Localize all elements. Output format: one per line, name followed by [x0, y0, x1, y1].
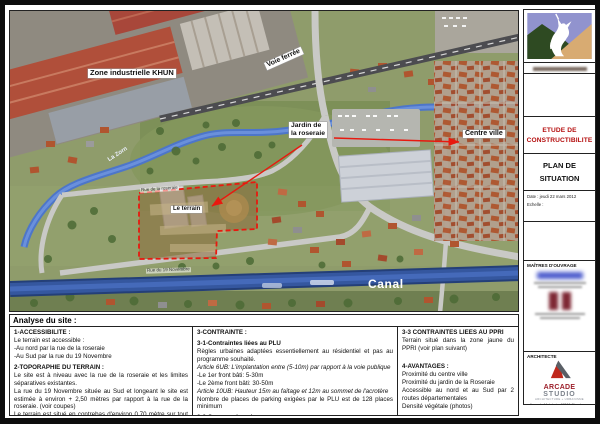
date-scale-box: Date : jeudi 22 mars 2012 Echelle :	[523, 190, 596, 222]
date-value: Date : jeudi 22 mars 2012	[527, 194, 592, 199]
maitres-ouvrage-header: MAÎTRES D'OUVRAGE	[527, 263, 592, 268]
text-line: La rue du 19 Novembre située au Sud et l…	[14, 388, 188, 412]
arcade-studio-logo-icon	[547, 359, 573, 379]
text-line: Article 6UB: L'implantation entre (5-10m…	[197, 364, 393, 372]
sheet-title-box: PLAN DE SITUATION	[523, 153, 596, 191]
text-line: Accessible au nord et au Sud par 2 route…	[402, 387, 514, 403]
text-line: Le terrain est accessible :	[14, 337, 188, 345]
city-logo-box	[523, 9, 596, 63]
sheet-title-line1: PLAN DE	[543, 161, 576, 170]
maitres-ouvrage-box: MAÎTRES D'OUVRAGE	[523, 260, 596, 352]
text-line: Proximité du jardin de la Roseraie	[402, 379, 514, 387]
text-line: Nombre de places de parking exigées par …	[197, 396, 393, 412]
label-centre-ville: Centre ville	[463, 130, 505, 138]
heading-avantages: 4-AVANTAGES :	[402, 363, 514, 371]
study-type-line2: CONSTRUCTIBILITE	[527, 137, 593, 144]
label-jardin-line1: Jardin de	[291, 122, 325, 130]
plan-sheet: Zone industrielle KHUN Voie ferrée Jardi…	[5, 5, 595, 418]
empty-box	[523, 221, 596, 261]
architecte-box: ARCHITECTE ARCADE STUDIO ARCHITECTURE + …	[523, 351, 596, 405]
empty-box	[523, 73, 596, 117]
analysis-col-ppri-avantages: 3-3 CONTRAINTES LIEES AU PPRI Terrain si…	[398, 327, 518, 415]
architect-address: 6 rue de Molsheim 67000 Strasbourg t 03 …	[527, 403, 592, 405]
text-line: -Au Sud par la rue du 19 Novembre	[14, 353, 188, 361]
study-type-line1: ETUDE DE	[542, 127, 576, 134]
heading-ppri: 3-3 CONTRAINTES LIEES AU PPRI	[402, 329, 514, 337]
label-jardin-roseraie: Jardin de la roseraie	[289, 122, 327, 138]
aerial-photo	[10, 11, 519, 312]
label-canal: Canal	[368, 277, 404, 291]
sheet-title-line2: SITUATION	[540, 174, 580, 183]
text-line: Le site est à niveau avec la rue de la r…	[14, 372, 188, 388]
label-zone-industrielle: Zone industrielle KHUN	[88, 69, 176, 78]
heading-accessibilite: 1-ACCESSIBILITE :	[14, 329, 188, 337]
architect-address-line: 6 rue de Molsheim 67000 Strasbourg	[527, 403, 592, 405]
heading-contraintes-plu: 3-1-Contraintes liées au PLU	[197, 340, 393, 348]
analysis-col-contraintes: 3-CONTRAINTE : 3-1-Contraintes liées au …	[193, 327, 398, 415]
text-line: Article 10UB: Hauteur 15m au faîtage et …	[197, 388, 393, 396]
heading-contrainte: 3-CONTRAINTE :	[197, 329, 393, 337]
text-line: Proximité du centre ville	[402, 371, 514, 379]
text-line: -Le 1er front bâti: 5-30m	[197, 372, 393, 380]
text-line: Le terrain est situé en contrebas d'envi…	[14, 411, 188, 415]
heading-nuisances: 3-2-Sources de nuisances sonores:	[197, 414, 393, 415]
study-type-box: ETUDE DE CONSTRUCTIBILITE	[523, 116, 596, 154]
heading-topographie: 2-TOPORAPHIE DU TERRAIN :	[14, 364, 188, 372]
label-le-terrain: Le terrain	[171, 206, 202, 213]
label-jardin-line2: la roseraie	[291, 130, 325, 138]
text-line: -Le 2ème front bâti: 30-50m	[197, 380, 393, 388]
client-logo2-blurred	[527, 292, 592, 310]
title-block-sidebar: ETUDE DE CONSTRUCTIBILITE PLAN DE SITUAT…	[523, 10, 596, 405]
text-line: Densité végétale (photos)	[402, 403, 514, 411]
architect-tagline: ARCHITECTURE + URBANISME	[527, 398, 592, 401]
client-logo-blurred	[537, 272, 583, 279]
analysis-col-accessibilite: 1-ACCESSIBILITE : Le terrain est accessi…	[10, 327, 193, 415]
text-line: Terrain situé dans la zone jaune du PPRI…	[402, 337, 514, 353]
plan-sheet-frame: Zone industrielle KHUN Voie ferrée Jardi…	[0, 0, 600, 424]
text-line: Règles urbaines adaptées essentiellement…	[197, 348, 393, 364]
analysis-table: 1-ACCESSIBILITE : Le terrain est accessi…	[9, 326, 519, 416]
architect-name: ARCADE STUDIO	[527, 384, 592, 398]
unicorn-logo-icon	[527, 13, 592, 59]
aerial-site-map: Zone industrielle KHUN Voie ferrée Jardi…	[9, 10, 519, 312]
scale-label: Echelle :	[527, 202, 592, 207]
architect-name-arcade: ARCADE	[544, 384, 576, 391]
text-line: -Au nord par la rue de la roseraie	[14, 345, 188, 353]
